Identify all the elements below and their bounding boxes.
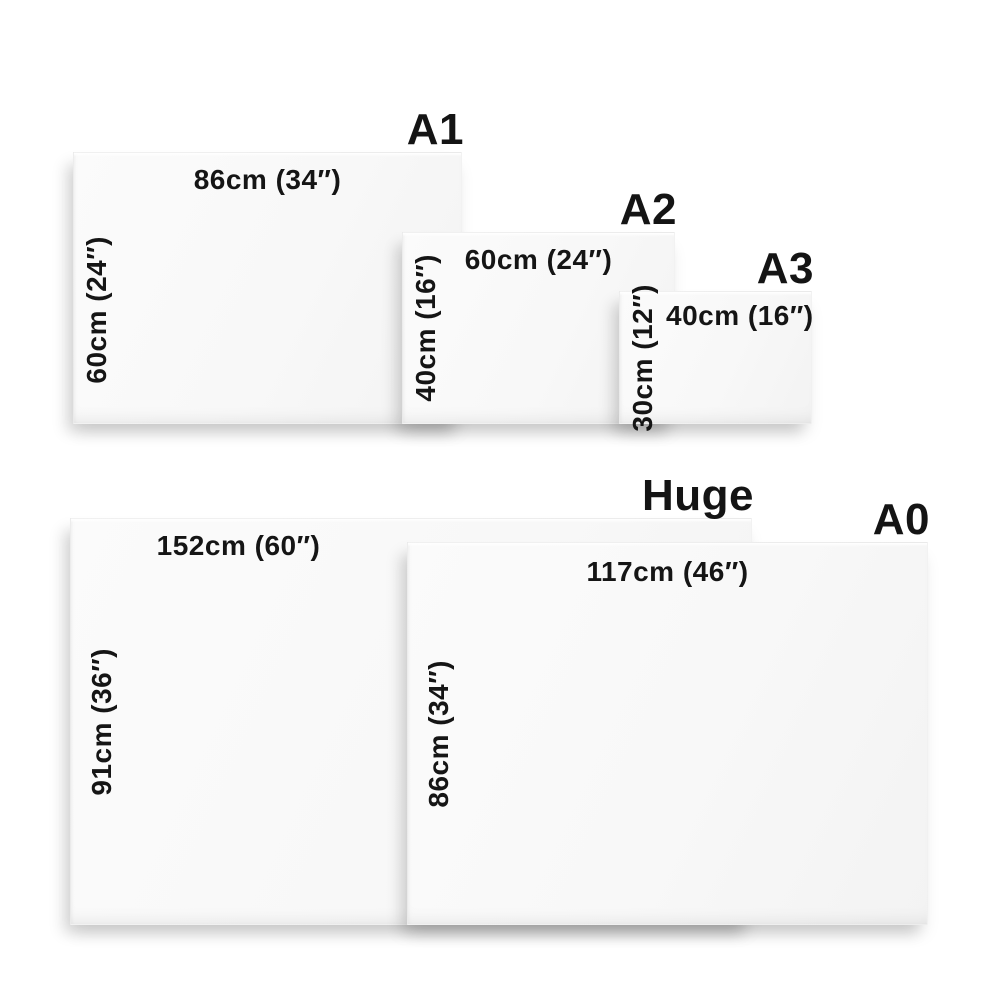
width-label-a1: 86cm (34″) bbox=[74, 164, 461, 196]
height-label-huge: 91cm (36″) bbox=[86, 648, 118, 796]
canvas-a0: A0 117cm (46″) 86cm (34″) bbox=[407, 542, 928, 925]
height-label-a3: 30cm (12″) bbox=[627, 284, 659, 432]
height-label-box-a0: 86cm (34″) bbox=[408, 543, 470, 924]
height-label-box-huge: 91cm (36″) bbox=[71, 519, 133, 924]
height-label-box-a2: 40cm (16″) bbox=[403, 233, 449, 423]
size-name-huge: Huge bbox=[642, 476, 754, 516]
size-comparison-diagram: A1 86cm (34″) 60cm (24″) A2 60cm (24″) 4… bbox=[0, 0, 1000, 1000]
width-label-a3: 40cm (16″) bbox=[666, 300, 811, 332]
size-name-a1: A1 bbox=[407, 110, 464, 150]
height-label-a2: 40cm (16″) bbox=[410, 254, 442, 402]
height-label-box-a1: 60cm (24″) bbox=[74, 153, 120, 423]
height-label-box-a3: 30cm (12″) bbox=[620, 292, 666, 423]
size-name-a0: A0 bbox=[873, 500, 930, 540]
height-label-a0: 86cm (34″) bbox=[423, 660, 455, 808]
height-label-a1: 60cm (24″) bbox=[81, 236, 113, 384]
canvas-a3: A3 40cm (16″) 30cm (12″) bbox=[619, 291, 812, 424]
size-name-a3: A3 bbox=[757, 249, 814, 289]
size-name-a2: A2 bbox=[620, 190, 677, 230]
width-label-a0: 117cm (46″) bbox=[408, 556, 927, 588]
